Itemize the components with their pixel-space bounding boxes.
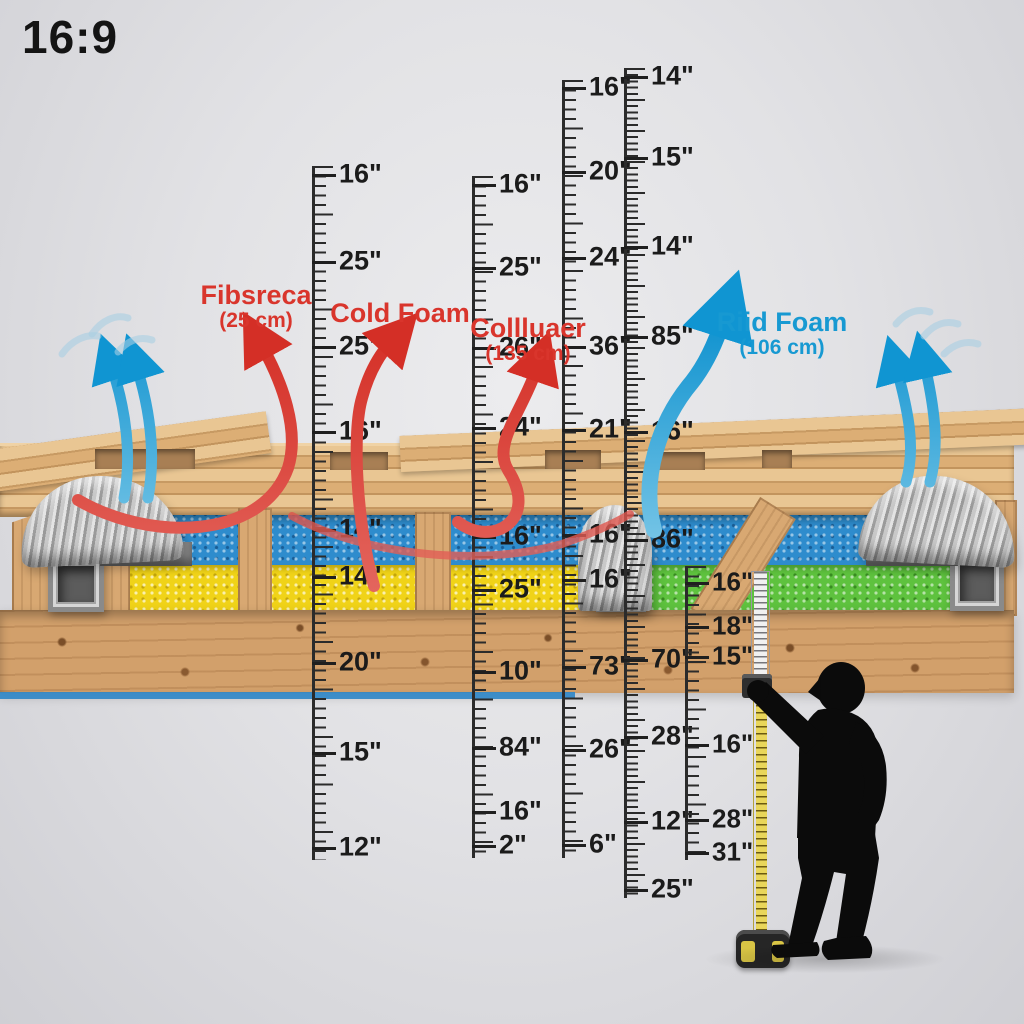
worker-silhouette bbox=[0, 0, 1024, 1024]
scene: 16:9 16"25"25"16"14 bbox=[0, 0, 1024, 1024]
